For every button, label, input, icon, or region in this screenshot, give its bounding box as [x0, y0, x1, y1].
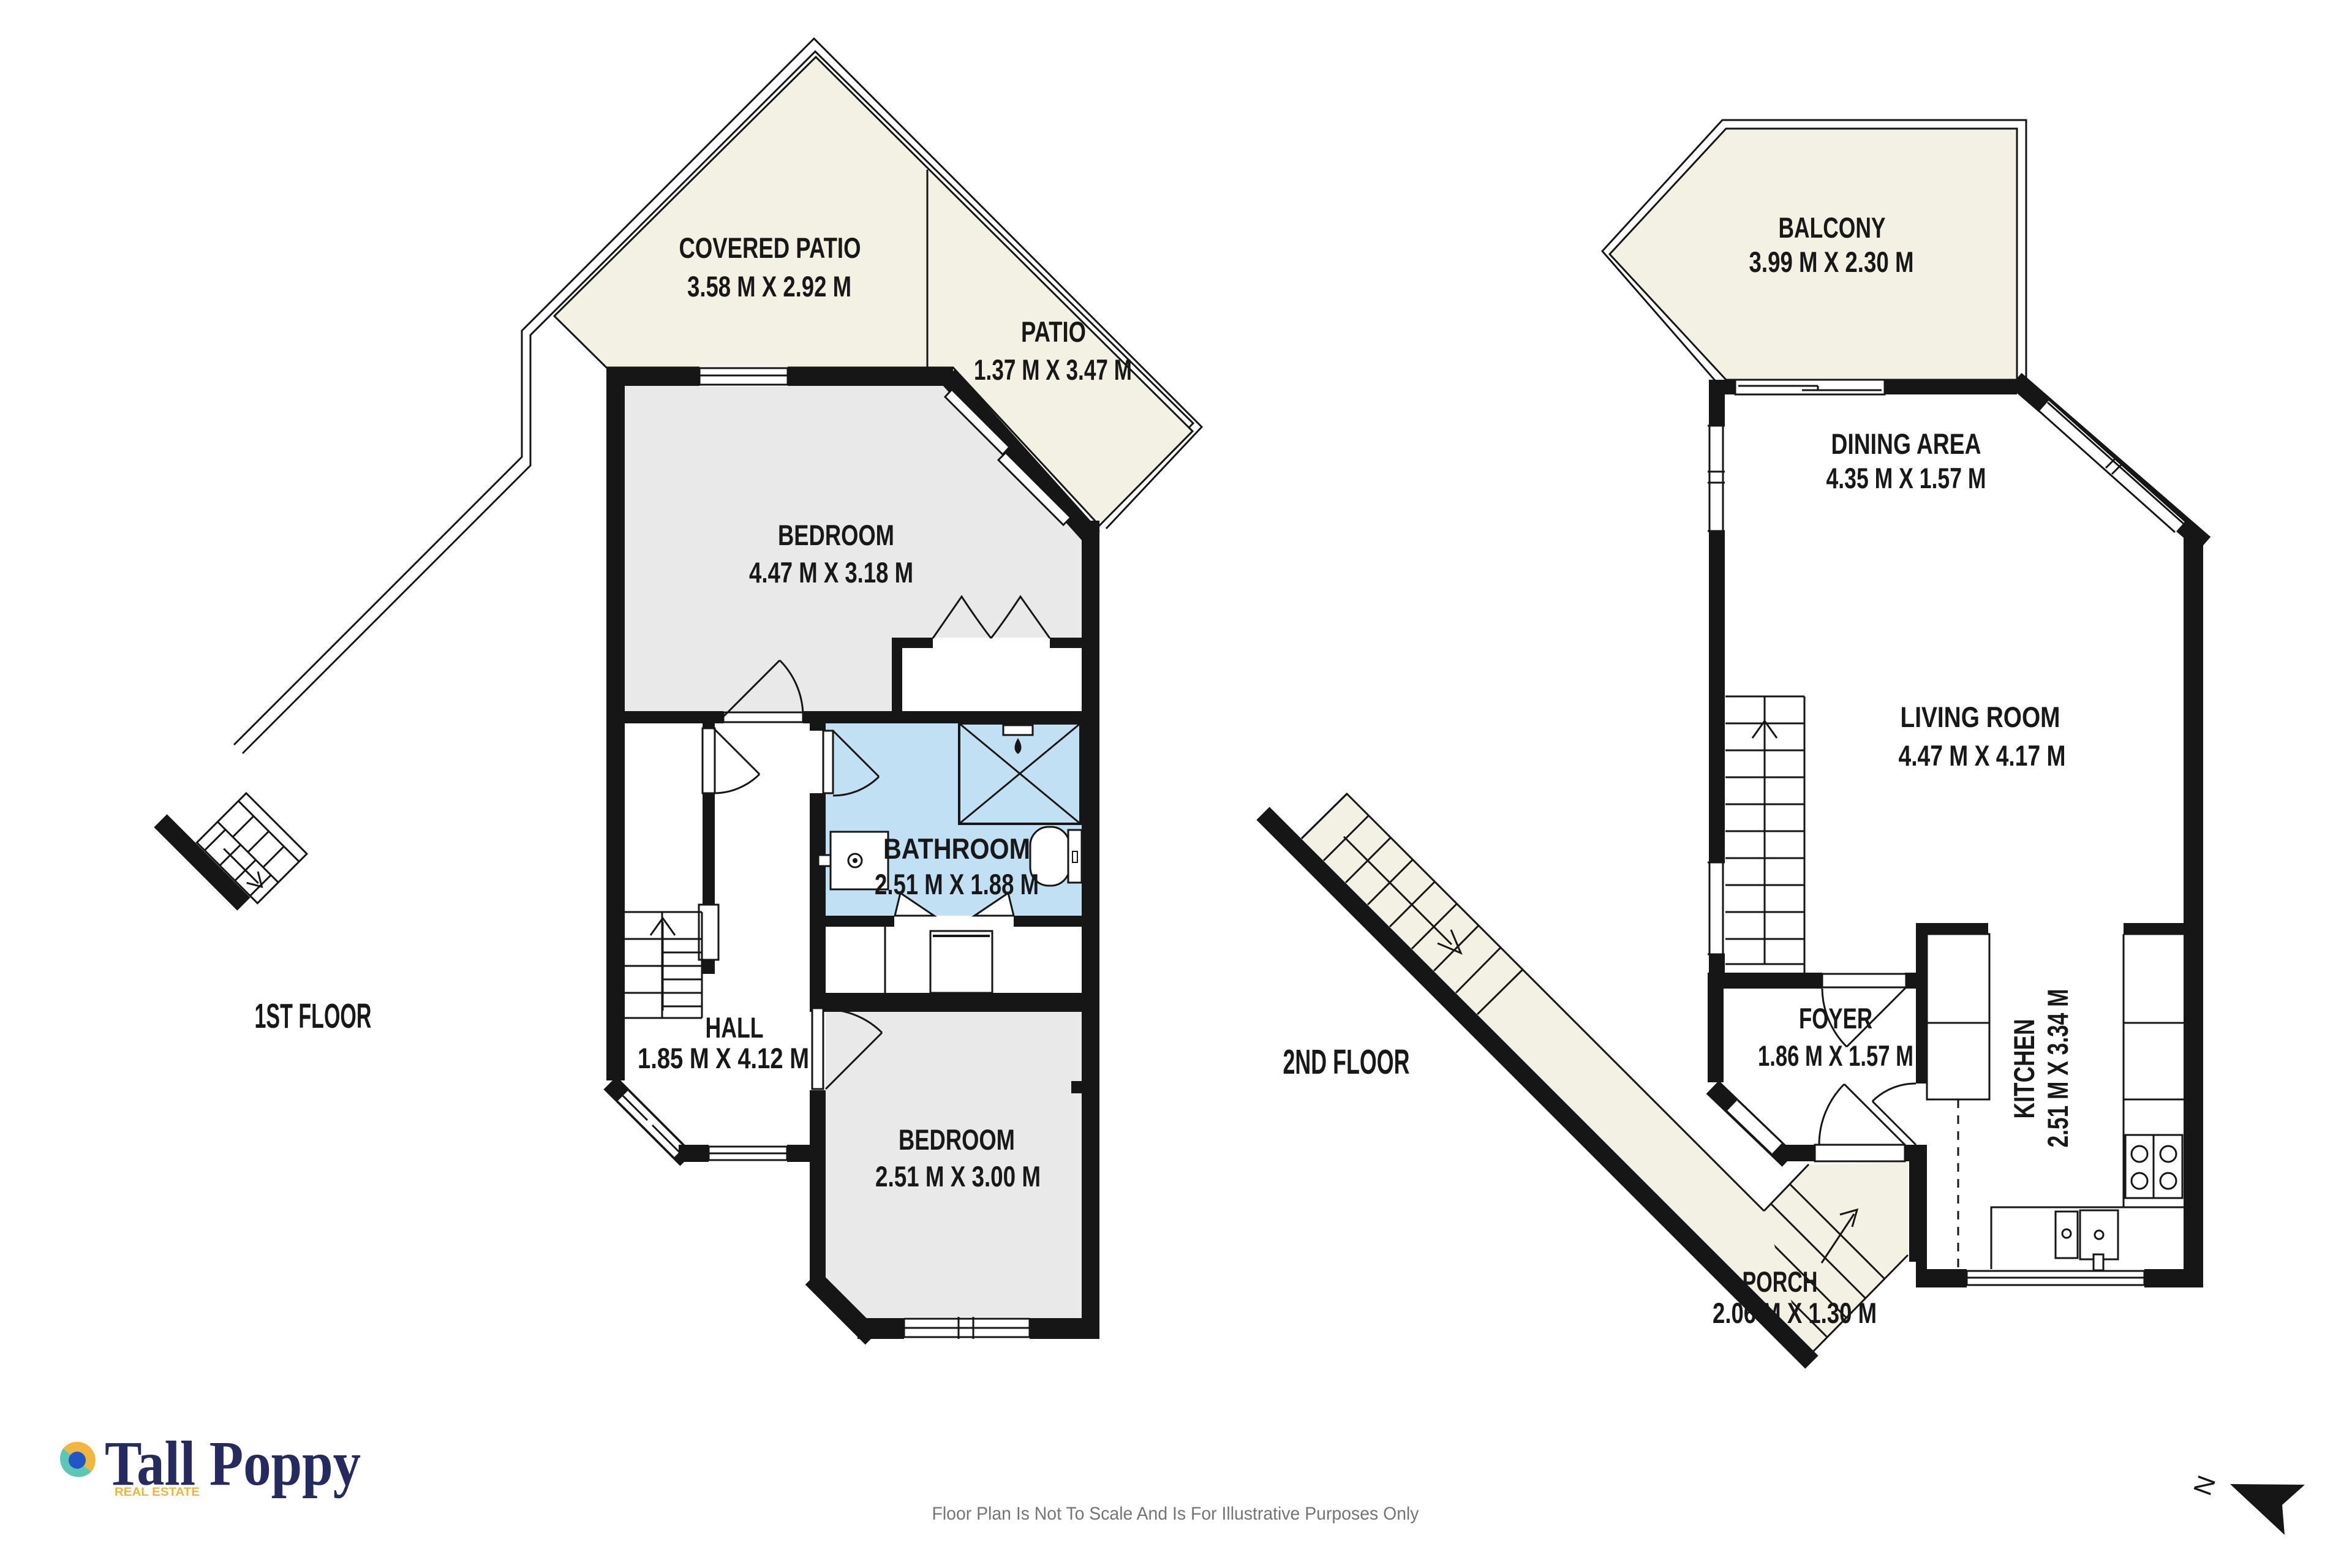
- svg-text:HALL: HALL: [706, 1011, 764, 1044]
- svg-text:BEDROOM: BEDROOM: [778, 519, 894, 551]
- svg-text:COVERED PATIO: COVERED PATIO: [679, 232, 861, 264]
- svg-text:2ND FLOOR: 2ND FLOOR: [1283, 1042, 1410, 1082]
- svg-text:DINING AREA: DINING AREA: [1831, 428, 1981, 460]
- svg-text:4.47 M X 3.18 M: 4.47 M X 3.18 M: [749, 556, 913, 589]
- svg-text:BATHROOM: BATHROOM: [883, 832, 1030, 865]
- svg-text:4.47 M X 4.17 M: 4.47 M X 4.17 M: [1899, 739, 2066, 772]
- svg-text:PATIO: PATIO: [1021, 315, 1086, 348]
- svg-text:2.06 M X 1.30 M: 2.06 M X 1.30 M: [1713, 1297, 1877, 1329]
- svg-text:2.51 M X 3.00 M: 2.51 M X 3.00 M: [875, 1160, 1041, 1193]
- svg-text:LIVING ROOM: LIVING ROOM: [1901, 701, 2060, 733]
- svg-text:BALCONY: BALCONY: [1779, 211, 1886, 244]
- svg-text:1.37 M X 3.47 M: 1.37 M X 3.47 M: [974, 353, 1132, 386]
- svg-text:REAL ESTATE: REAL ESTATE: [115, 1486, 200, 1499]
- svg-text:2.51 M X 1.88 M: 2.51 M X 1.88 M: [875, 868, 1039, 900]
- svg-text:FOYER: FOYER: [1799, 1002, 1872, 1035]
- svg-text:4.35 M X 1.57 M: 4.35 M X 1.57 M: [1826, 462, 1986, 494]
- svg-text:BEDROOM: BEDROOM: [899, 1123, 1015, 1156]
- svg-text:KITCHEN: KITCHEN: [2008, 1019, 2040, 1119]
- svg-text:Floor Plan Is Not To Scale And: Floor Plan Is Not To Scale And Is For Il…: [932, 1504, 1419, 1524]
- svg-text:1.86 M X 1.57 M: 1.86 M X 1.57 M: [1758, 1039, 1913, 1072]
- svg-text:3.58 M X 2.92 M: 3.58 M X 2.92 M: [687, 270, 851, 303]
- svg-text:1ST FLOOR: 1ST FLOOR: [255, 997, 372, 1036]
- svg-text:2.51 M X 3.34 M: 2.51 M X 3.34 M: [2041, 989, 2074, 1148]
- svg-text:1.85 M X 4.12 M: 1.85 M X 4.12 M: [638, 1042, 809, 1074]
- svg-text:3.99 M X 2.30 M: 3.99 M X 2.30 M: [1749, 246, 1914, 278]
